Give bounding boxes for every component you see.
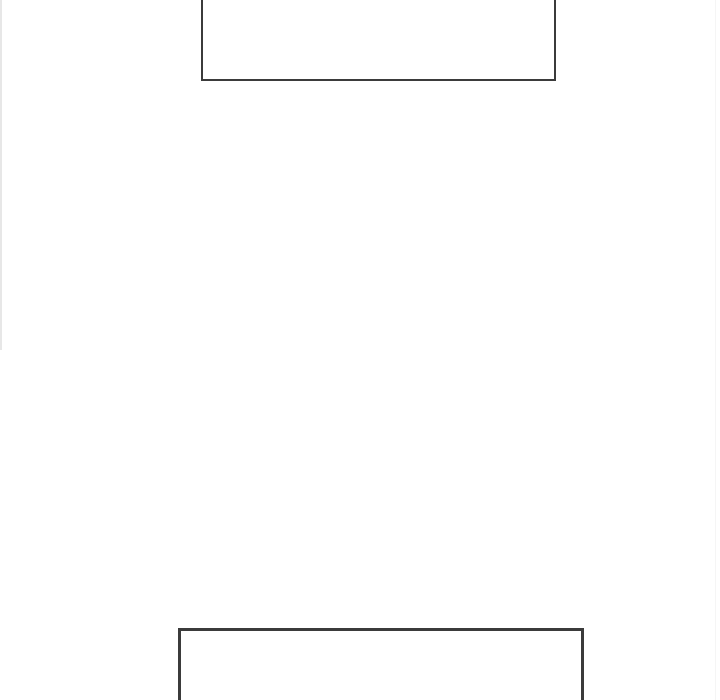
- diagram-canvas[interactable]: [0, 0, 720, 700]
- left-panel-edge-line: [0, 0, 2, 350]
- right-panel-edge-line: [715, 0, 716, 700]
- rectangle-shape-top[interactable]: [201, 0, 556, 81]
- rectangle-shape-bottom[interactable]: [178, 628, 584, 700]
